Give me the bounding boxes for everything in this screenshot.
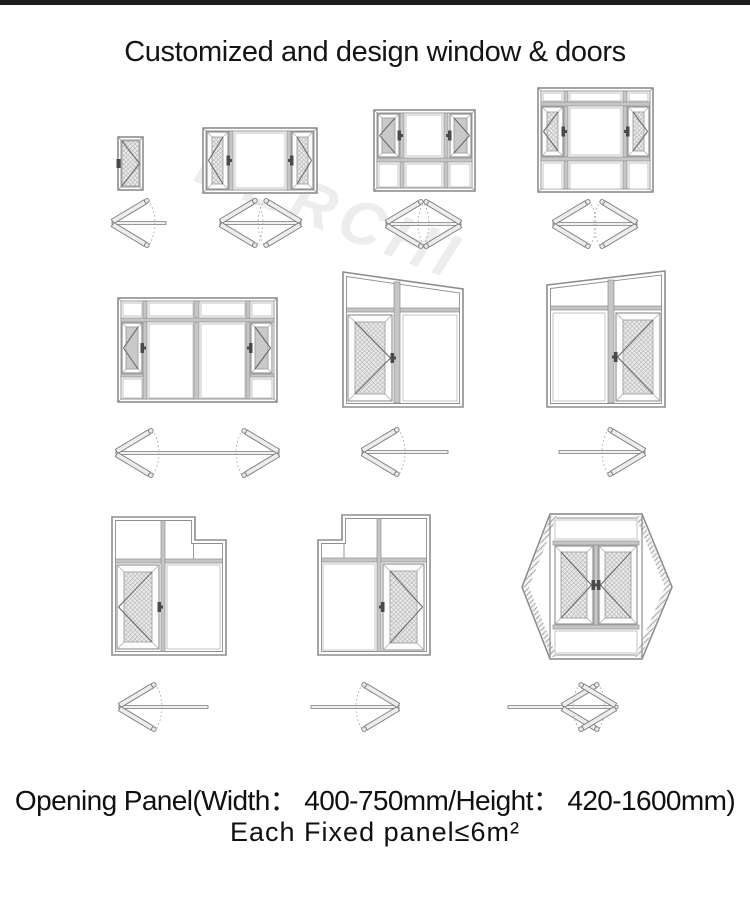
swing-arrow-double-icon <box>552 199 637 250</box>
swing-arrow-double-icon <box>219 198 301 249</box>
wide-window-side-casements-icon <box>118 298 277 402</box>
casement-window-transom-and-bottom-fixed-icon <box>538 88 653 192</box>
swing-arrow-right-icon <box>559 427 646 478</box>
two-side-casements-fixed-center-window-icon <box>203 128 317 193</box>
single-casement-door-icon <box>117 137 144 190</box>
swing-arrow-left-icon <box>361 427 448 478</box>
two-casement-window-bottom-fixed-icon <box>374 110 475 191</box>
catalog-page: Customized and design window & doors DER… <box>0 0 750 923</box>
swing-arrow-right-icon <box>311 682 400 733</box>
swing-arrow-center-double-icon <box>508 682 618 733</box>
raked-top-door-right-opening-icon <box>547 271 665 407</box>
swing-arrow-left-icon <box>111 198 166 249</box>
swing-arrow-double-icon <box>385 199 461 250</box>
stepped-top-door-left-opening-icon <box>112 517 226 655</box>
diagram-canvas <box>0 0 750 923</box>
swing-arrow-left-icon <box>118 682 208 733</box>
raked-top-door-left-opening-icon <box>343 272 463 407</box>
hexagon-double-casement-window-icon <box>522 514 672 659</box>
stepped-top-door-right-opening-icon <box>318 515 430 655</box>
swing-arrow-double-wide-icon <box>115 428 279 479</box>
